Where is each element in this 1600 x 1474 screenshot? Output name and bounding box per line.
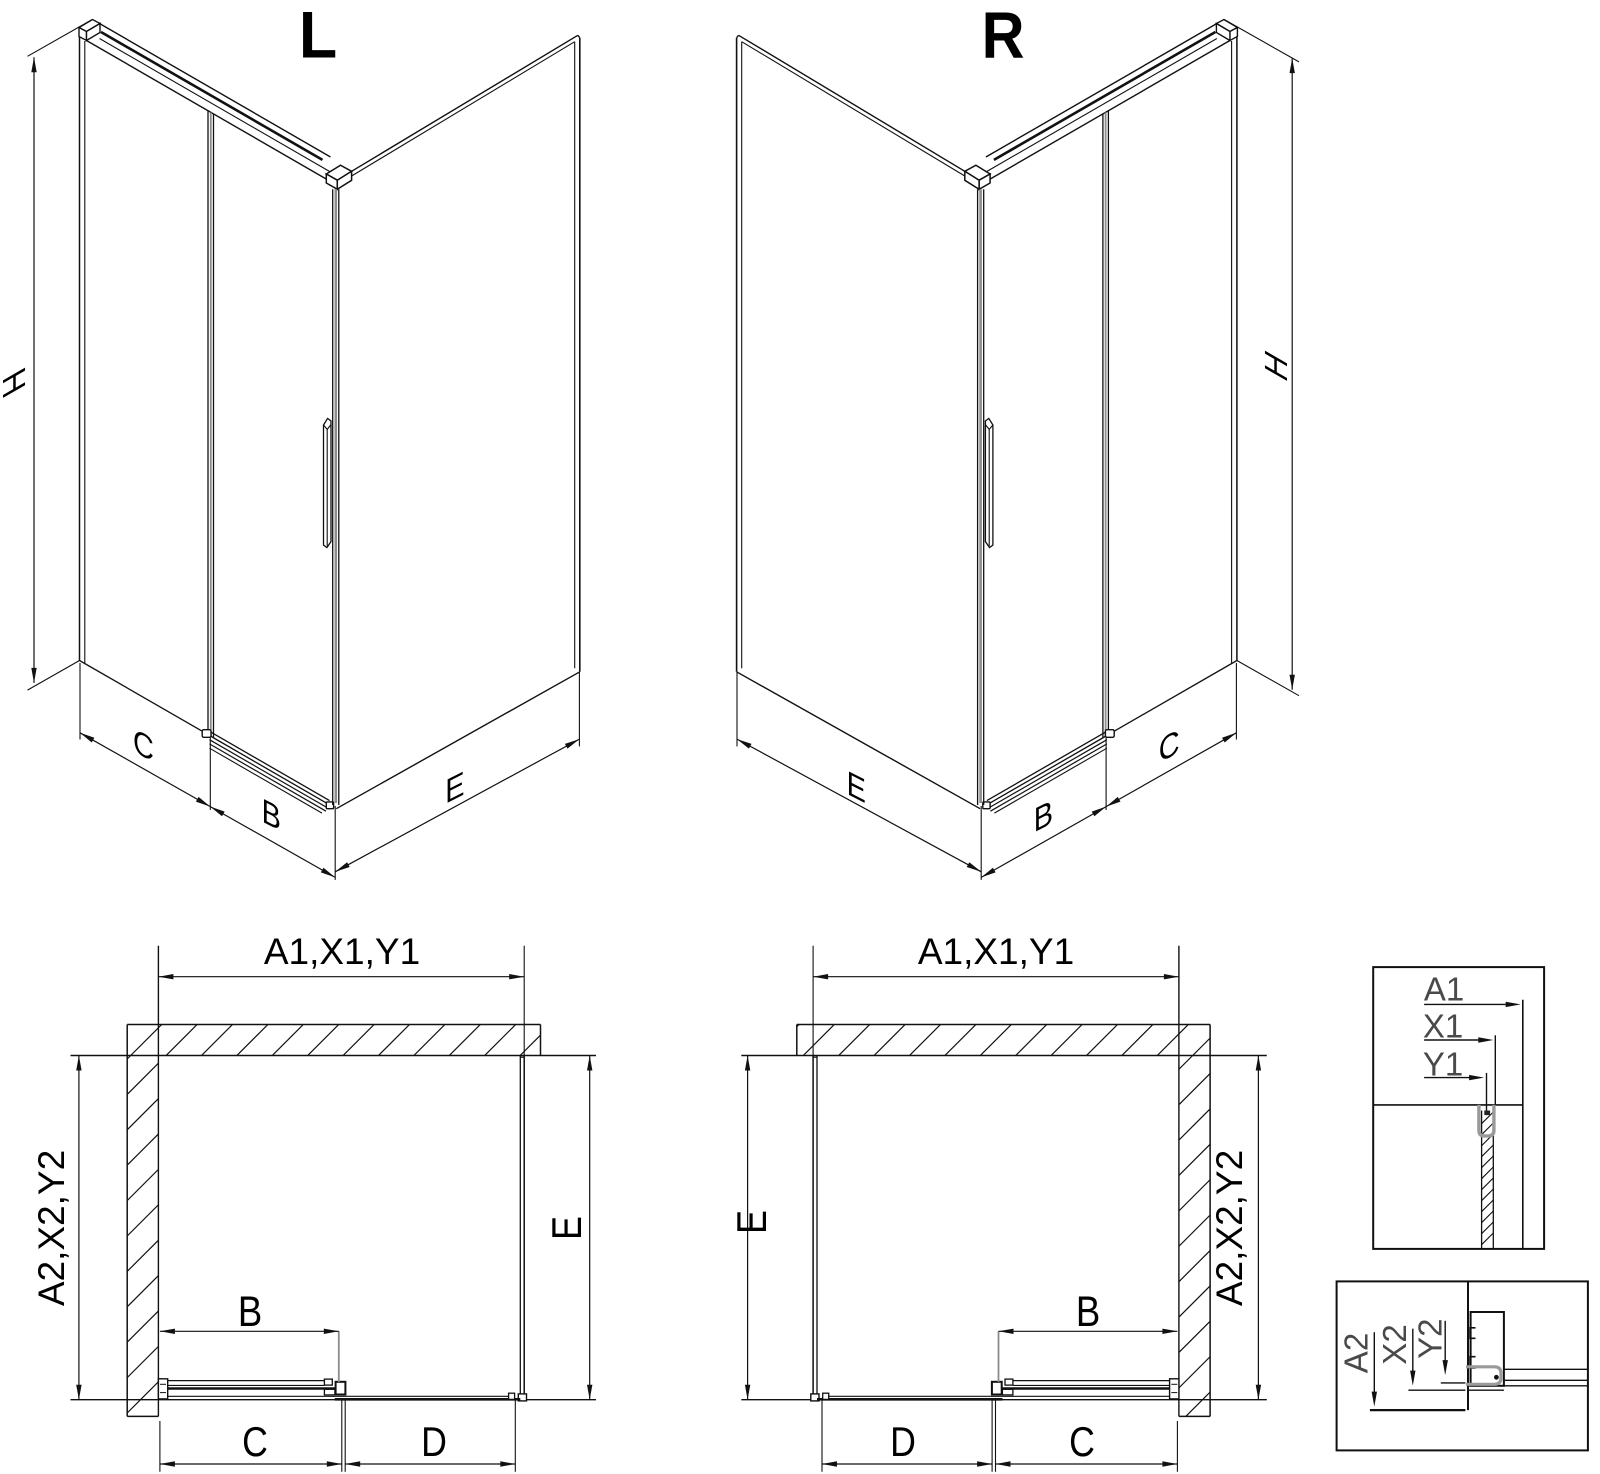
svg-text:A2,X2,Y2: A2,X2,Y2 [1209,1150,1250,1306]
svg-text:Y1: Y1 [1423,1045,1463,1082]
svg-text:C: C [1069,1419,1095,1465]
svg-text:A1,X1,Y1: A1,X1,Y1 [918,931,1074,972]
svg-text:A2: A2 [1338,1333,1375,1373]
svg-text:R: R [982,0,1025,72]
svg-text:A1: A1 [1424,971,1464,1008]
svg-text:D: D [421,1419,447,1465]
svg-text:Y2: Y2 [1412,1319,1449,1359]
svg-text:C: C [242,1419,268,1465]
svg-text:A2,X2,Y2: A2,X2,Y2 [31,1150,72,1306]
svg-text:E: E [729,1210,775,1234]
svg-text:B: B [238,1288,262,1335]
svg-text:A1,X1,Y1: A1,X1,Y1 [264,931,420,972]
svg-text:L: L [299,0,337,72]
svg-text:E: E [544,1216,590,1240]
svg-text:X1: X1 [1423,1008,1463,1045]
svg-text:D: D [890,1419,916,1465]
svg-text:B: B [1076,1288,1100,1335]
svg-text:X2: X2 [1376,1324,1413,1364]
